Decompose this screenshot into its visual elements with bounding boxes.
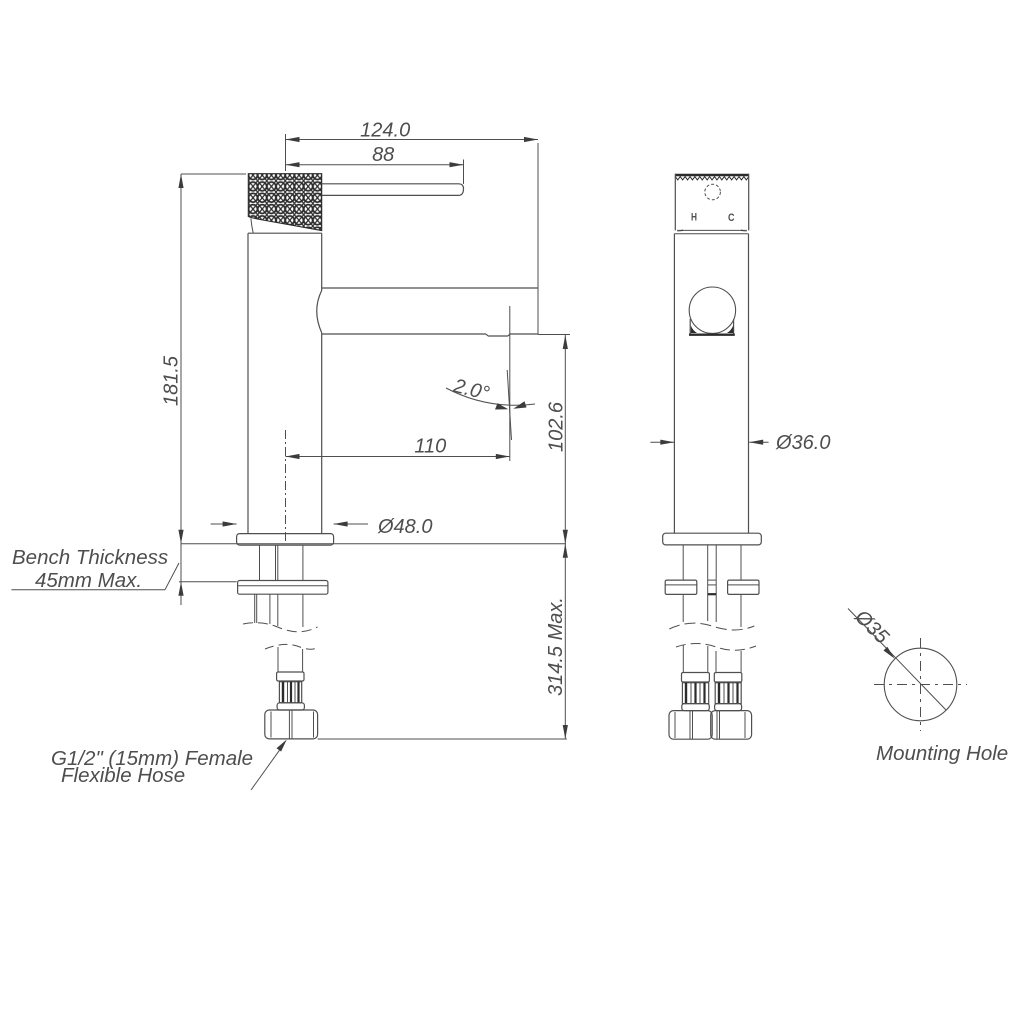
svg-text:314.5 Max.: 314.5 Max.: [545, 597, 567, 696]
svg-text:45mm Max.: 45mm Max.: [35, 569, 142, 592]
svg-text:Ø36.0: Ø36.0: [775, 432, 830, 454]
svg-text:Mounting Hole: Mounting Hole: [876, 742, 1008, 765]
svg-text:124.0: 124.0: [360, 120, 410, 142]
svg-text:181.5: 181.5: [161, 355, 183, 406]
svg-text:88: 88: [372, 144, 394, 166]
svg-text:Flexible Hose: Flexible Hose: [61, 764, 185, 787]
svg-text:Bench Thickness: Bench Thickness: [12, 546, 168, 569]
svg-text:Ø48.0: Ø48.0: [377, 516, 432, 538]
svg-text:102.6: 102.6: [545, 401, 567, 452]
svg-text:110: 110: [414, 436, 446, 458]
svg-text:H: H: [691, 211, 697, 223]
svg-text:C: C: [728, 212, 735, 224]
